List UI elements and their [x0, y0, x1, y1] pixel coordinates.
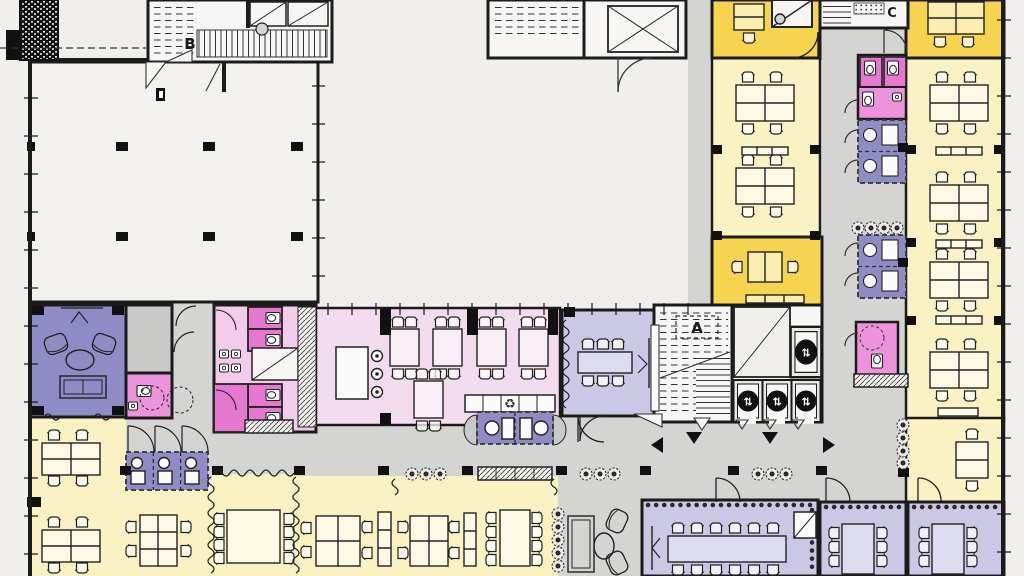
stair-a-label: A — [691, 319, 703, 337]
stair-c-label: C — [887, 6, 897, 21]
floor-plan: B C A ⇅ ⇅ ⇅ ⇅ ♻ — [0, 0, 1024, 576]
stair-b-label: B — [184, 35, 195, 53]
room-office-br — [906, 418, 1004, 502]
floor-plan-svg: B C A ⇅ ⇅ ⇅ ⇅ ♻ — [0, 0, 1024, 576]
recycle-icon-glyph: ♻ — [504, 397, 516, 412]
elevator-icon-glyph: ⇅ — [743, 396, 752, 409]
elevator-icon-glyph: ⇅ — [801, 347, 810, 360]
room-hall — [30, 62, 318, 302]
elevator-icon-glyph: ⇅ — [801, 396, 810, 409]
elevator-icon-glyph: ⇅ — [772, 396, 781, 409]
lockers-core-strip — [854, 374, 908, 387]
hatched-core-block — [20, 0, 58, 60]
room-storage — [126, 305, 172, 373]
room-lounge — [30, 305, 126, 417]
